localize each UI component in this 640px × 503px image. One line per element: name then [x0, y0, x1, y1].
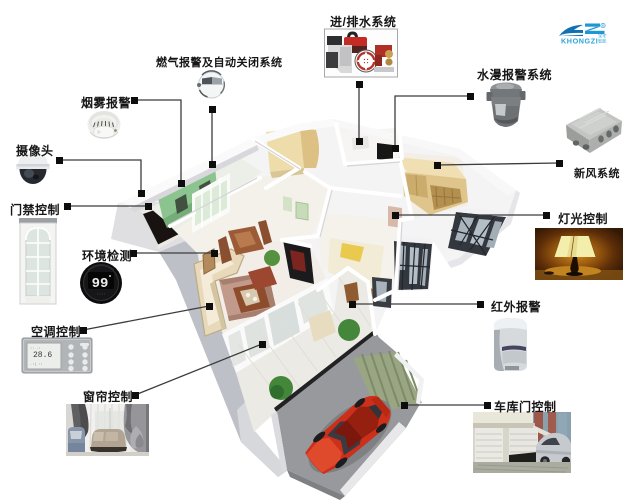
svg-text:KHONGZI: KHONGZI: [561, 37, 598, 46]
svg-text::: .:: :: .:: [30, 347, 41, 351]
svg-text:: : : :: : : : :: [97, 291, 105, 296]
svg-text:.:| ::: .:| ::: [30, 362, 43, 367]
svg-text:99: 99: [92, 276, 109, 292]
svg-text:28.6: 28.6: [33, 351, 52, 360]
svg-text:宝宅: 宝宅: [598, 32, 606, 38]
svg-text:智能: 智能: [598, 38, 607, 45]
